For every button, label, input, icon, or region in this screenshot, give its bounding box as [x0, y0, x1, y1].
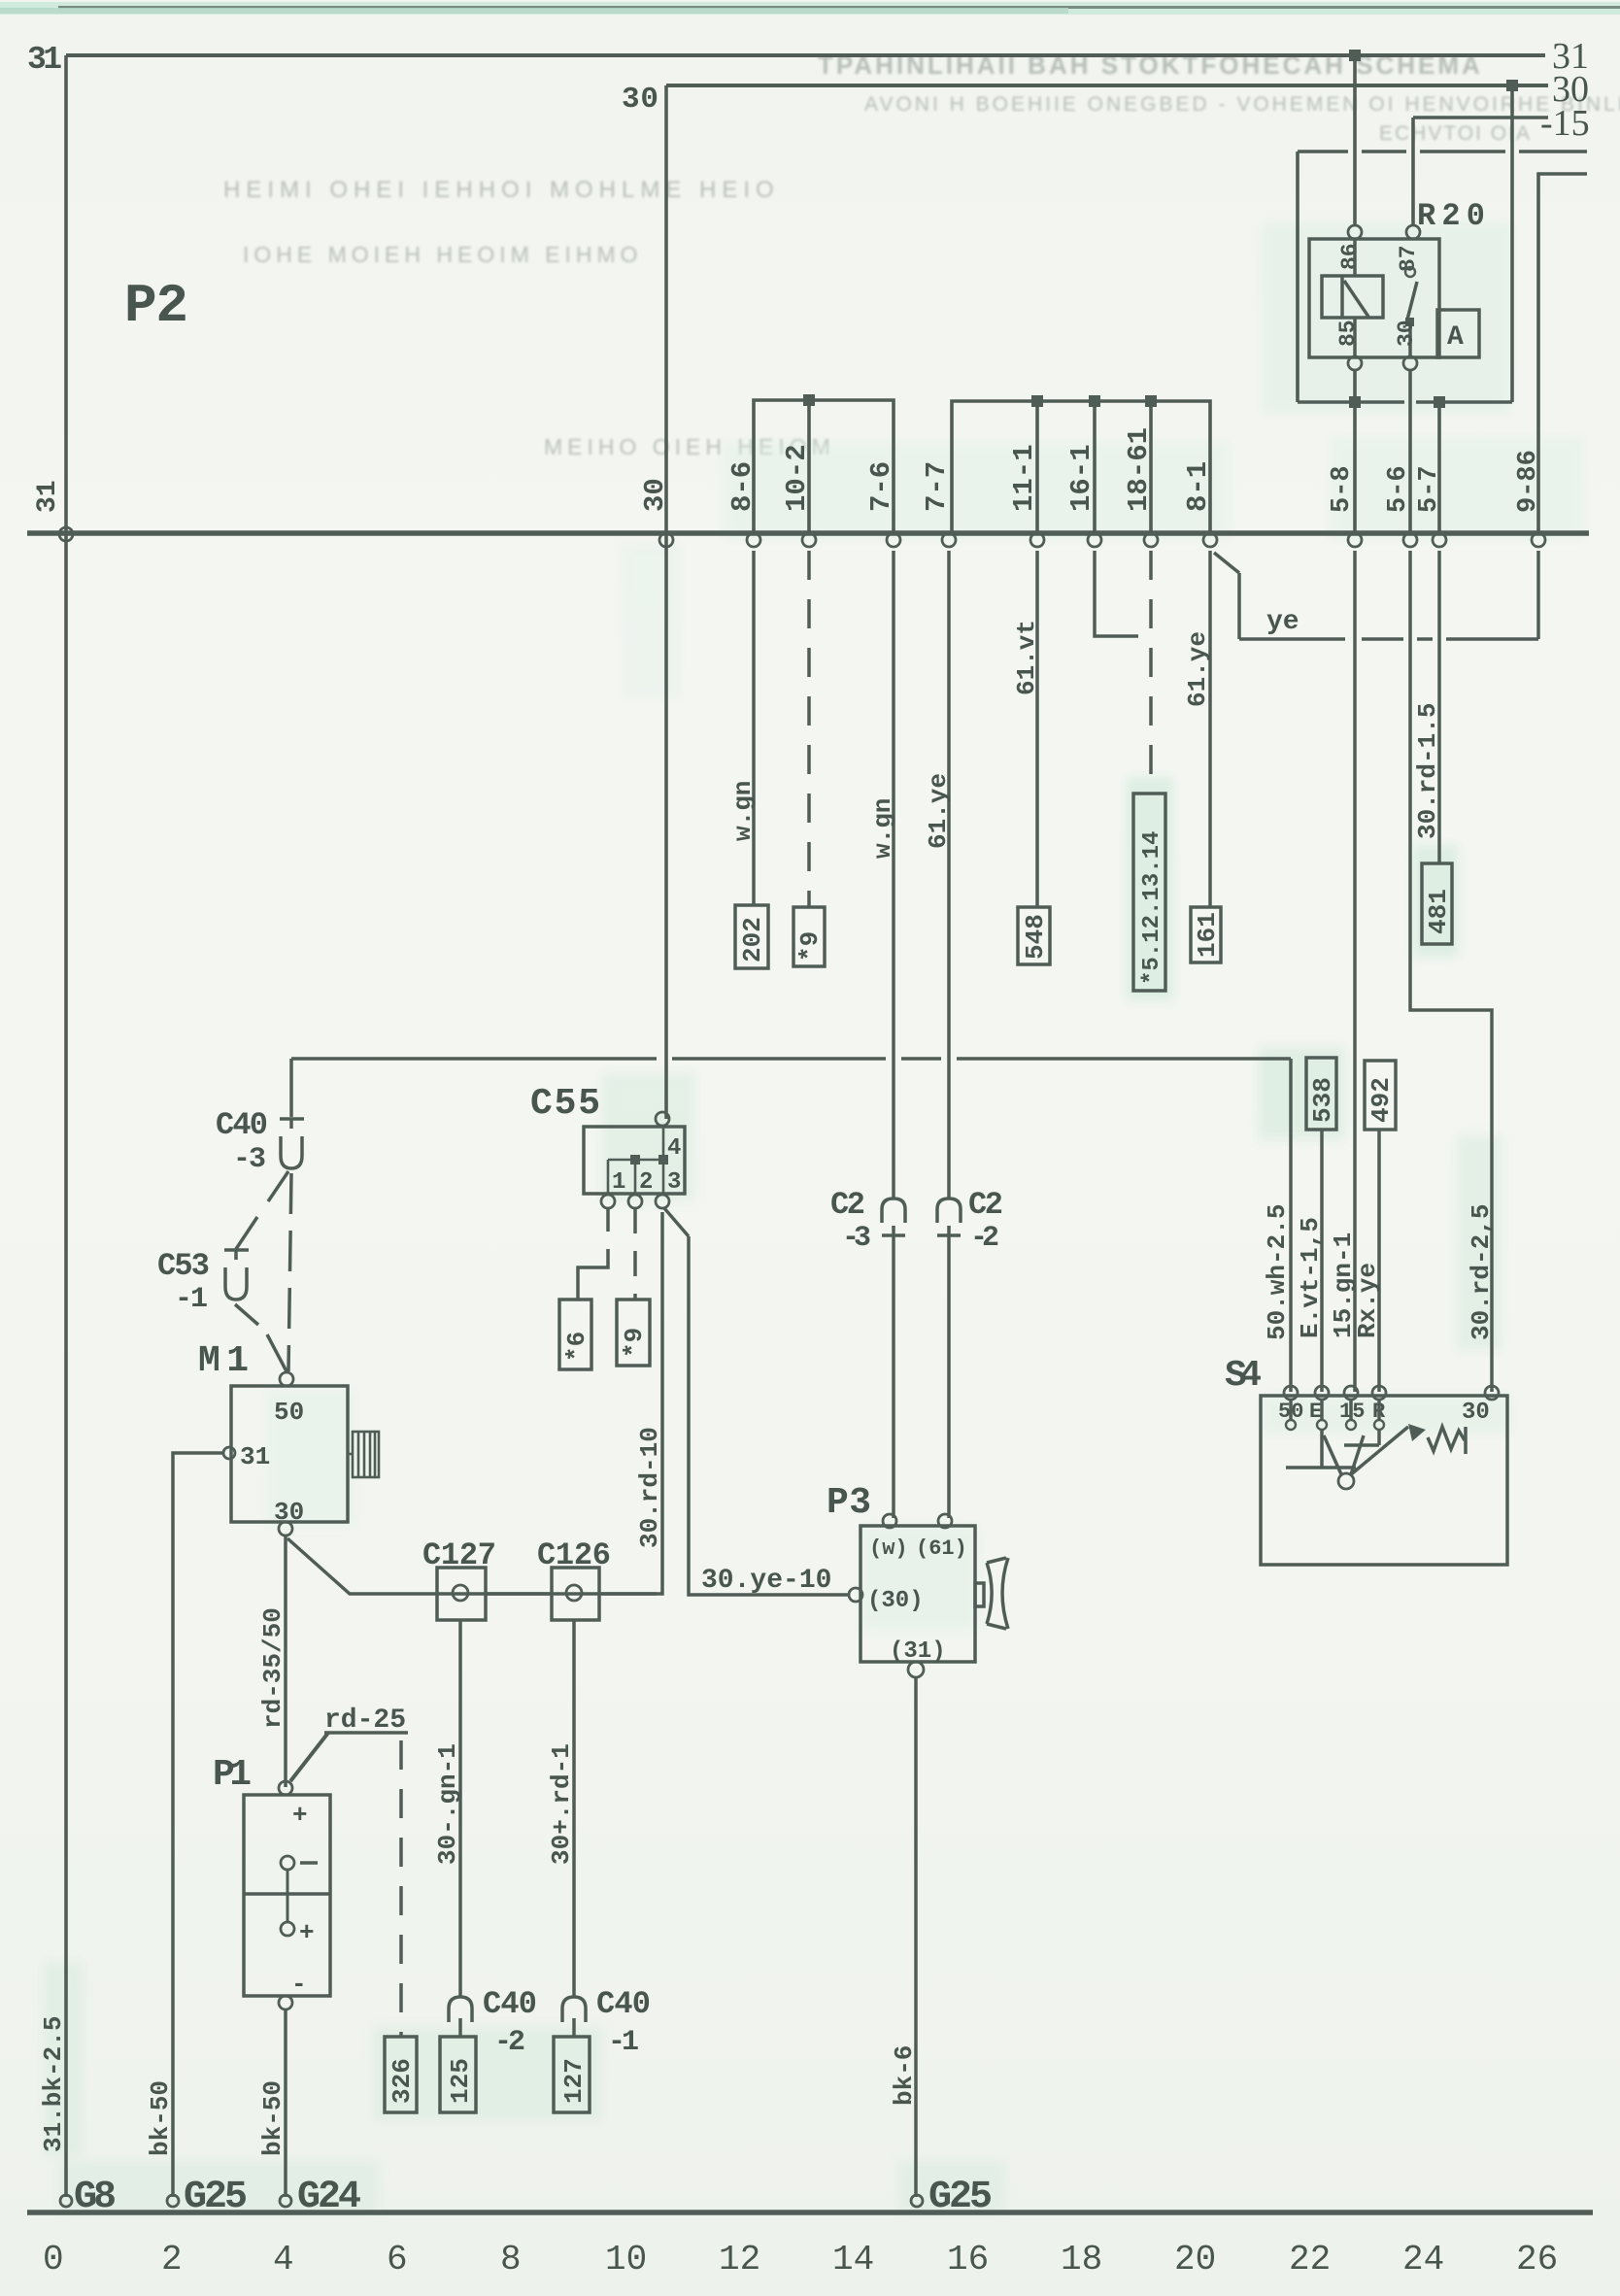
svg-text:E.vt-1,5: E.vt-1,5	[1296, 1217, 1325, 1338]
svg-text:AVONI H BOEHIIE ONEGBED - VOHE: AVONI H BOEHIIE ONEGBED - VOHEMEN OI HEN…	[864, 93, 1620, 116]
svg-text:31: 31	[27, 42, 62, 78]
svg-text:-2: -2	[494, 2026, 525, 2059]
svg-text:R20: R20	[1417, 198, 1485, 234]
svg-text:S4: S4	[1225, 1355, 1262, 1397]
svg-text:127: 127	[559, 2058, 589, 2104]
svg-text:18: 18	[1061, 2240, 1102, 2279]
svg-text:11-1: 11-1	[1008, 444, 1040, 512]
svg-text:*6: *6	[562, 1332, 591, 1362]
svg-text:492: 492	[1367, 1077, 1396, 1123]
svg-text:*9: *9	[795, 931, 825, 962]
svg-text:A: A	[1447, 322, 1464, 353]
svg-text:7-6: 7-6	[865, 461, 897, 512]
svg-text:5-6: 5-6	[1384, 465, 1413, 513]
svg-text:C40: C40	[483, 1986, 537, 2022]
svg-text:G25: G25	[184, 2176, 248, 2219]
svg-text:4: 4	[273, 2240, 294, 2279]
svg-text:125: 125	[446, 2058, 475, 2104]
svg-text:8: 8	[500, 2240, 522, 2279]
svg-text:C40: C40	[596, 1986, 651, 2022]
svg-text:61.ye: 61.ye	[924, 773, 953, 849]
svg-text:538: 538	[1308, 1077, 1337, 1123]
svg-text:0: 0	[43, 2240, 64, 2279]
svg-text:30: 30	[639, 478, 671, 512]
svg-text:w.gn: w.gn	[728, 781, 758, 841]
svg-text:50.wh-2.5: 50.wh-2.5	[1263, 1204, 1292, 1340]
svg-text:Rx.ye: Rx.ye	[1353, 1263, 1382, 1338]
svg-text:30: 30	[1462, 1400, 1490, 1426]
svg-text:30.rd-1.5: 30.rd-1.5	[1413, 703, 1442, 839]
svg-text:HEIMI OHEI IEHHOI MOHLME HEIO: HEIMI OHEI IEHHOI MOHLME HEIO	[223, 177, 780, 203]
svg-text:30: 30	[622, 83, 658, 117]
svg-text:22: 22	[1289, 2240, 1331, 2279]
svg-text:26: 26	[1516, 2240, 1558, 2279]
svg-text:+: +	[299, 1918, 315, 1947]
svg-text:(61): (61)	[916, 1536, 967, 1561]
svg-text:-2: -2	[970, 1222, 999, 1255]
svg-text:161: 161	[1193, 912, 1222, 958]
svg-text:IOHE MOIEH HEOIM EIHMO: IOHE MOIEH HEOIM EIHMO	[243, 242, 643, 267]
svg-text:6: 6	[387, 2240, 408, 2279]
svg-text:20: 20	[1174, 2240, 1216, 2279]
svg-text:10-2: 10-2	[781, 444, 813, 512]
svg-text:30+.rd-1: 30+.rd-1	[547, 1743, 576, 1865]
svg-text:P1: P1	[213, 1754, 252, 1796]
svg-text:30: 30	[1394, 320, 1419, 347]
svg-text:86: 86	[1337, 243, 1363, 270]
svg-text:2: 2	[161, 2240, 183, 2279]
svg-text:61.ye: 61.ye	[1183, 631, 1212, 707]
svg-text:C40: C40	[216, 1107, 268, 1143]
svg-text:rd-35/50: rd-35/50	[258, 1607, 287, 1729]
svg-text:326: 326	[388, 2058, 417, 2104]
svg-text:30.ye-10: 30.ye-10	[701, 1566, 831, 1596]
svg-text:3: 3	[667, 1169, 681, 1196]
svg-text:30-.gn-1: 30-.gn-1	[433, 1743, 462, 1865]
svg-text:7-7: 7-7	[921, 461, 953, 512]
svg-text:10: 10	[605, 2240, 647, 2279]
svg-text:24: 24	[1402, 2240, 1444, 2279]
svg-text:M1: M1	[198, 1340, 249, 1382]
svg-text:-: -	[291, 1970, 307, 1999]
svg-text:8-1: 8-1	[1182, 461, 1214, 512]
svg-text:31: 31	[33, 480, 63, 513]
svg-text:G25: G25	[928, 2176, 993, 2219]
svg-text:31: 31	[240, 1442, 270, 1471]
svg-text:16: 16	[947, 2240, 989, 2279]
svg-text:9-86: 9-86	[1514, 450, 1543, 513]
svg-text:P3: P3	[827, 1482, 871, 1524]
svg-text:-1: -1	[175, 1283, 208, 1316]
svg-text:8-6: 8-6	[726, 461, 759, 512]
svg-text:ye: ye	[1266, 607, 1299, 637]
svg-text:14: 14	[832, 2240, 874, 2279]
svg-text:ECHVTOI OIA: ECHVTOI OIA	[1379, 122, 1532, 145]
svg-text:30.rd-10: 30.rd-10	[635, 1427, 664, 1548]
svg-text:P2: P2	[124, 275, 188, 337]
svg-text:12: 12	[719, 2240, 760, 2279]
svg-text:-3: -3	[233, 1143, 266, 1176]
svg-text:(30): (30)	[867, 1588, 924, 1614]
svg-text:2: 2	[639, 1169, 653, 1196]
svg-text:E: E	[1309, 1400, 1322, 1424]
svg-text:5-8: 5-8	[1328, 465, 1357, 513]
svg-text:481: 481	[1424, 889, 1453, 934]
svg-text:bk-6: bk-6	[890, 2045, 919, 2106]
svg-text:548: 548	[1021, 914, 1050, 960]
svg-text:30.rd-2,5: 30.rd-2,5	[1467, 1204, 1496, 1340]
svg-text:-15: -15	[1540, 103, 1590, 144]
svg-text:*9: *9	[620, 1328, 649, 1358]
svg-text:-1: -1	[608, 2026, 639, 2059]
svg-text:18-61: 18-61	[1123, 427, 1155, 512]
svg-text:G24: G24	[297, 2176, 361, 2219]
svg-text:31.bk-2.5: 31.bk-2.5	[39, 2016, 68, 2152]
svg-text:(w): (w)	[869, 1536, 908, 1561]
svg-text:4: 4	[667, 1135, 681, 1162]
svg-text:61.vt: 61.vt	[1012, 620, 1041, 695]
svg-text:w.gn: w.gn	[868, 798, 897, 859]
svg-text:50: 50	[274, 1398, 304, 1427]
svg-text:85: 85	[1335, 320, 1361, 347]
svg-text:16-1: 16-1	[1065, 444, 1097, 512]
svg-text:C2: C2	[830, 1187, 865, 1223]
svg-text:C55: C55	[530, 1083, 600, 1125]
svg-text:202: 202	[738, 917, 767, 962]
svg-text:bk-50: bk-50	[258, 2080, 287, 2156]
svg-text:bk-50: bk-50	[146, 2080, 175, 2156]
svg-text:-3: -3	[842, 1222, 871, 1255]
svg-text:*5.12.13.14: *5.12.13.14	[1139, 831, 1165, 985]
svg-text:5-7: 5-7	[1415, 465, 1444, 513]
svg-text:G8: G8	[74, 2176, 117, 2219]
svg-text:C2: C2	[968, 1187, 1003, 1223]
svg-text:C53: C53	[157, 1248, 210, 1284]
svg-text:1: 1	[612, 1169, 625, 1196]
svg-text:+: +	[292, 1801, 308, 1830]
